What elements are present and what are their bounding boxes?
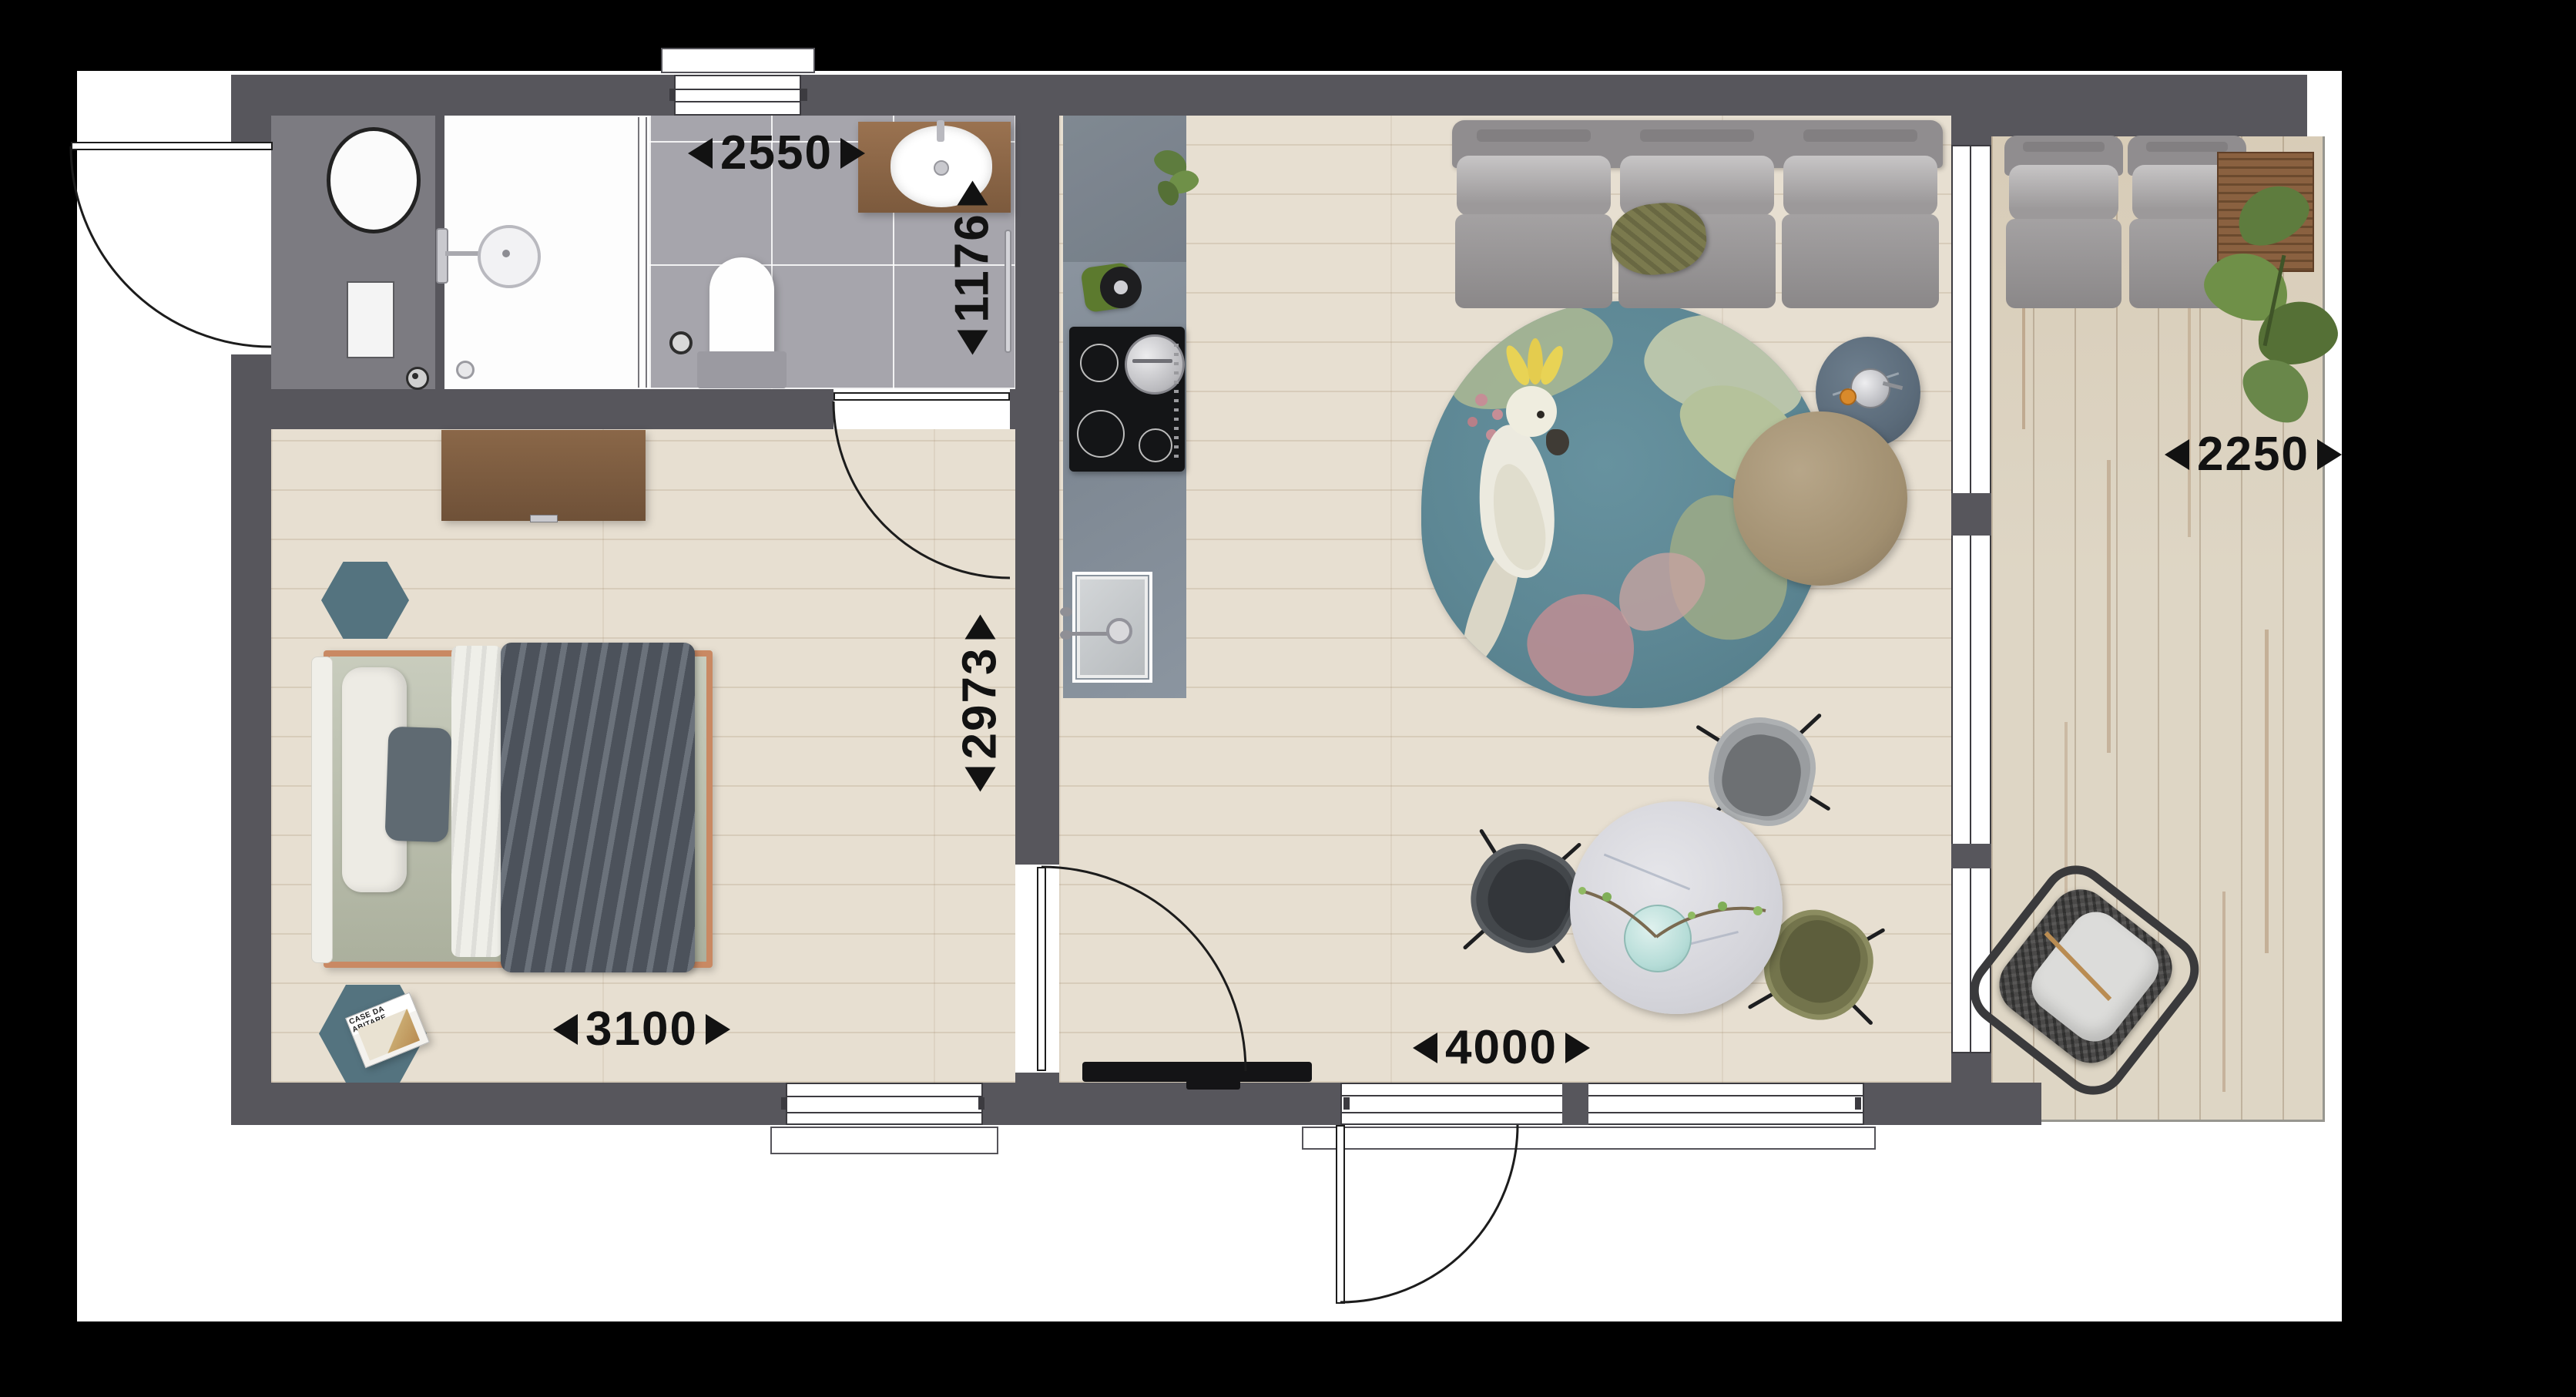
dimension-bedroom-depth: 2973 bbox=[953, 615, 1008, 792]
dimension-terrace-width: 2250 bbox=[2165, 427, 2342, 482]
branch-leaf-dot bbox=[1718, 902, 1727, 911]
dimension-bathroom-depth: 1176 bbox=[945, 180, 1000, 357]
branch-leaf-dot bbox=[1753, 906, 1763, 915]
dim-value: 4000 bbox=[1445, 1020, 1558, 1075]
branch-leaf-dot bbox=[1688, 912, 1696, 919]
dimension-bathroom-width: 2550 bbox=[688, 126, 865, 180]
dim-arrow-left-icon bbox=[553, 1014, 578, 1045]
dim-arrow-left-icon bbox=[957, 331, 988, 355]
dim-arrow-right-icon bbox=[2317, 439, 2342, 470]
line-overlay bbox=[0, 0, 2576, 1397]
vase-branch bbox=[1656, 908, 1766, 937]
dim-arrow-left-icon bbox=[1413, 1033, 1437, 1063]
vase-branch bbox=[1581, 891, 1656, 937]
dim-arrow-left-icon bbox=[688, 138, 713, 169]
branch-leaf-dot bbox=[1602, 892, 1612, 902]
dim-arrow-right-icon bbox=[957, 180, 988, 205]
dim-arrow-left-icon bbox=[2165, 439, 2189, 470]
bathroom-door-swing-arc bbox=[834, 401, 1010, 578]
dim-arrow-left-icon bbox=[964, 767, 995, 791]
dim-arrow-right-icon bbox=[706, 1014, 730, 1045]
dim-value: 3100 bbox=[585, 1002, 698, 1056]
dimension-living-width: 4000 bbox=[1413, 1020, 1590, 1075]
entrance-door-swing-arc bbox=[1340, 1125, 1518, 1302]
dim-arrow-right-icon bbox=[840, 138, 865, 169]
dim-arrow-right-icon bbox=[964, 615, 995, 640]
interior-door-swing-arc bbox=[1041, 867, 1246, 1071]
floorplan-canvas: CASE DA ABITARE bbox=[0, 0, 2576, 1397]
branch-leaf-dot bbox=[1578, 887, 1586, 895]
dim-arrow-right-icon bbox=[1565, 1033, 1590, 1063]
dimension-bedroom-width: 3100 bbox=[553, 1002, 730, 1056]
dim-value: 2550 bbox=[720, 126, 833, 180]
dim-value: 2250 bbox=[2197, 427, 2309, 482]
dim-value: 2973 bbox=[953, 647, 1008, 760]
entry-door-swing-arc bbox=[71, 146, 271, 347]
dim-value: 1176 bbox=[945, 213, 1000, 323]
